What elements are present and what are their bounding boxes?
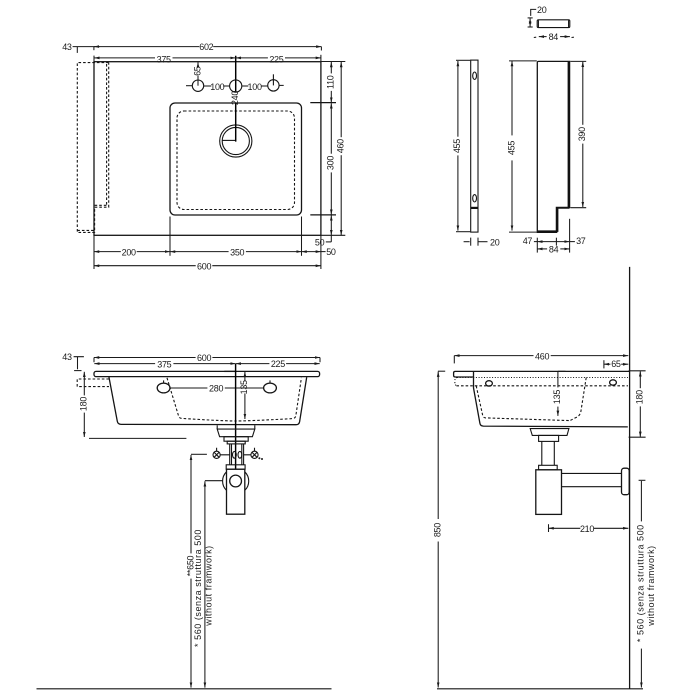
svg-text:225: 225 [269, 54, 283, 64]
svg-text:350: 350 [230, 248, 244, 258]
svg-text:300: 300 [326, 156, 336, 170]
svg-text:37: 37 [576, 236, 586, 246]
svg-text:50: 50 [315, 237, 325, 247]
svg-text:20: 20 [537, 5, 547, 15]
svg-text:110: 110 [326, 75, 336, 89]
svg-text:50: 50 [326, 247, 336, 257]
svg-text:20: 20 [490, 238, 500, 248]
svg-text:* 560 (senza struttura 500: * 560 (senza struttura 500 [193, 529, 203, 647]
svg-text:460: 460 [336, 139, 346, 153]
svg-text:280: 280 [209, 383, 223, 393]
svg-text:43: 43 [62, 42, 72, 52]
svg-text:* 560 (senza struttura 500: * 560 (senza struttura 500 [636, 524, 646, 642]
svg-text:43: 43 [62, 352, 72, 362]
svg-text:84: 84 [549, 244, 559, 254]
svg-text:135: 135 [552, 390, 562, 404]
svg-text:225: 225 [271, 359, 285, 369]
svg-text:240: 240 [230, 91, 240, 105]
svg-text:210: 210 [580, 524, 594, 534]
svg-text:84: 84 [549, 32, 559, 42]
svg-text:180: 180 [79, 397, 89, 411]
svg-text:135: 135 [239, 380, 249, 394]
svg-text:180: 180 [635, 390, 645, 404]
svg-text:600: 600 [197, 261, 211, 271]
svg-text:without framwork): without framwork) [646, 545, 656, 626]
svg-text:375: 375 [157, 359, 171, 369]
svg-text:460: 460 [535, 351, 549, 361]
svg-text:602: 602 [199, 42, 213, 52]
svg-text:100: 100 [248, 82, 262, 92]
svg-text:200: 200 [122, 248, 136, 258]
svg-text:47: 47 [523, 236, 533, 246]
svg-text:65: 65 [611, 359, 621, 369]
svg-text:100: 100 [210, 82, 224, 92]
svg-text:390: 390 [577, 127, 587, 141]
svg-text:455: 455 [452, 139, 462, 153]
svg-text:without framwork): without framwork) [204, 545, 214, 626]
svg-text:455: 455 [506, 141, 516, 155]
svg-text:375: 375 [157, 54, 171, 64]
svg-text:65: 65 [192, 66, 202, 76]
svg-text:600: 600 [197, 353, 211, 363]
svg-text:850: 850 [433, 523, 443, 537]
